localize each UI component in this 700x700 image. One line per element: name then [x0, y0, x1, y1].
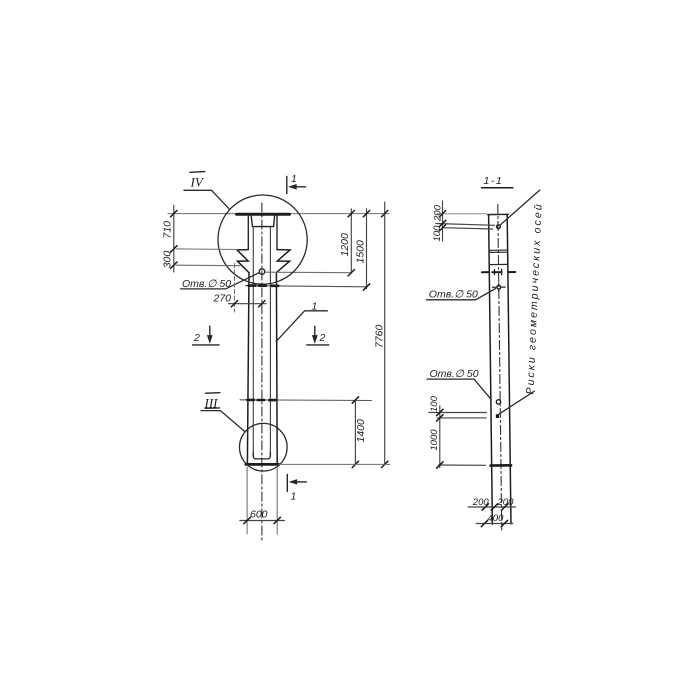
svg-text:2: 2	[319, 332, 326, 344]
svg-text:1500: 1500	[355, 240, 367, 264]
svg-text:Отв.∅ 50: Отв.∅ 50	[182, 278, 231, 290]
svg-text:1000: 1000	[429, 429, 440, 451]
svg-text:1: 1	[291, 173, 297, 185]
svg-text:200: 200	[432, 204, 443, 222]
svg-text:1: 1	[291, 491, 297, 503]
svg-text:2: 2	[193, 332, 200, 344]
svg-text:100: 100	[432, 225, 443, 242]
svg-text:7760: 7760	[374, 324, 386, 348]
svg-text:200: 200	[497, 497, 515, 508]
svg-text:600: 600	[250, 509, 268, 521]
svg-text:270: 270	[213, 293, 232, 305]
svg-text:100: 100	[429, 395, 440, 412]
svg-text:710: 710	[162, 221, 174, 239]
svg-text:Отв.∅ 50: Отв.∅ 50	[429, 288, 478, 300]
svg-text:200: 200	[472, 497, 490, 508]
svg-text:1200: 1200	[339, 233, 351, 257]
svg-text:400: 400	[488, 513, 505, 524]
svg-text:IV: IV	[190, 175, 205, 190]
svg-text:1-1: 1-1	[484, 175, 504, 187]
svg-text:Отв.∅ 50: Отв.∅ 50	[430, 368, 479, 380]
svg-text:1400: 1400	[355, 419, 367, 443]
svg-text:300: 300	[162, 251, 174, 269]
